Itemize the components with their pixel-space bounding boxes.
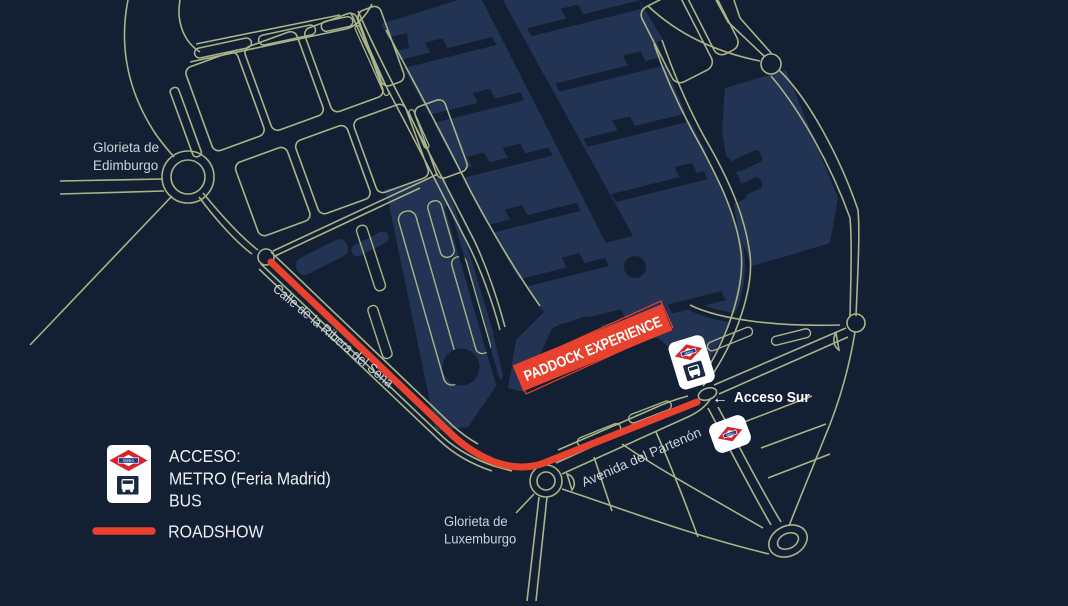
svg-text:Glorieta de: Glorieta de (444, 514, 508, 530)
svg-text:Edimburgo: Edimburgo (93, 158, 158, 173)
svg-text:Luxemburgo: Luxemburgo (444, 531, 516, 547)
svg-text:Acceso Sur: Acceso Sur (734, 389, 810, 405)
svg-text:Metro: Metro (123, 458, 134, 463)
svg-text:BUS: BUS (169, 491, 202, 511)
svg-text:Glorieta de: Glorieta de (93, 140, 159, 155)
svg-text:METRO (Feria Madrid): METRO (Feria Madrid) (169, 469, 331, 489)
svg-text:←: ← (712, 390, 728, 407)
svg-text:ACCESO:: ACCESO: (169, 446, 241, 466)
svg-text:ROADSHOW: ROADSHOW (168, 522, 264, 542)
